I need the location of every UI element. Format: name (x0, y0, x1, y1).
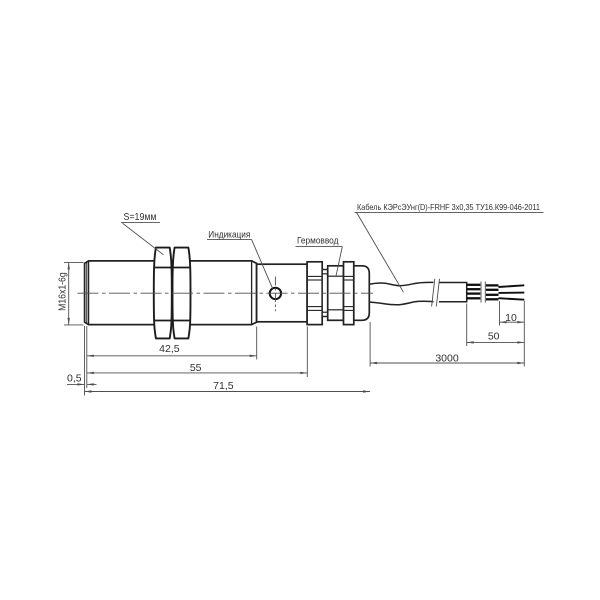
svg-text:55: 55 (190, 362, 202, 374)
svg-text:Кабель КЭРсЭУнг(D)-FRHF 3х0,35: Кабель КЭРсЭУнг(D)-FRHF 3х0,35 ТУ16.К99-… (357, 202, 540, 212)
svg-text:71,5: 71,5 (213, 380, 234, 392)
svg-text:Индикация: Индикация (208, 229, 250, 240)
svg-text:50: 50 (488, 331, 500, 343)
svg-text:0,5: 0,5 (67, 373, 82, 385)
svg-text:M16x1-6g: M16x1-6g (57, 272, 68, 311)
svg-text:S=19мм: S=19мм (124, 211, 157, 223)
svg-text:3000: 3000 (435, 352, 459, 364)
svg-text:42,5: 42,5 (159, 343, 180, 355)
svg-text:Гермоввод: Гермоввод (297, 235, 339, 246)
svg-text:10: 10 (505, 312, 517, 324)
